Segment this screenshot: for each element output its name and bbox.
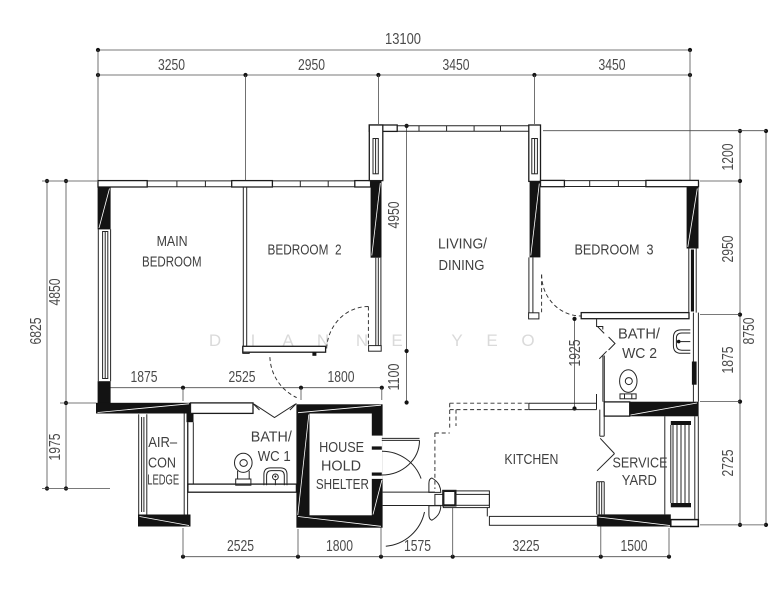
svg-text:WC 1: WC 1 (258, 448, 291, 465)
svg-text:1875: 1875 (720, 346, 737, 373)
svg-text:2950: 2950 (720, 235, 737, 262)
svg-text:MAIN: MAIN (157, 233, 188, 250)
svg-text:E: E (391, 331, 402, 350)
svg-text:E: E (486, 331, 497, 350)
svg-text:3450: 3450 (443, 57, 470, 74)
svg-text:1500: 1500 (621, 538, 648, 555)
svg-text:3450: 3450 (599, 57, 626, 74)
svg-text:O: O (521, 331, 534, 350)
svg-text:SERVICE: SERVICE (613, 455, 668, 472)
svg-text:CON: CON (148, 455, 176, 472)
svg-text:N: N (356, 331, 368, 350)
svg-text:Y: Y (451, 331, 462, 350)
svg-text:1100: 1100 (386, 363, 403, 390)
svg-text:BATH/: BATH/ (618, 326, 661, 343)
svg-text:BEDROOM 2: BEDROOM 2 (268, 242, 342, 259)
svg-text:BEDROOM 3: BEDROOM 3 (575, 242, 654, 259)
svg-text:HOLD: HOLD (321, 458, 361, 475)
svg-text:2525: 2525 (229, 369, 256, 386)
svg-text:KITCHEN: KITCHEN (504, 451, 558, 468)
svg-text:1975: 1975 (47, 433, 64, 460)
svg-text:1800: 1800 (326, 538, 353, 555)
svg-text:1800: 1800 (328, 369, 355, 386)
svg-text:1925: 1925 (567, 339, 584, 366)
svg-text:YARD: YARD (622, 472, 657, 489)
svg-text:BATH/: BATH/ (251, 429, 293, 446)
svg-text:2950: 2950 (298, 57, 325, 74)
svg-text:WC 2: WC 2 (622, 345, 657, 362)
svg-text:BEDROOM: BEDROOM (142, 253, 202, 270)
svg-text:1575: 1575 (404, 538, 431, 555)
svg-text:4850: 4850 (47, 278, 64, 305)
svg-text:LEDGE: LEDGE (147, 472, 179, 489)
svg-text:3225: 3225 (513, 538, 540, 555)
svg-text:6825: 6825 (28, 317, 45, 344)
svg-text:LIVING/: LIVING/ (438, 236, 488, 253)
svg-text:2725: 2725 (720, 449, 737, 476)
svg-text:13100: 13100 (385, 31, 421, 48)
svg-text:1200: 1200 (720, 143, 737, 170)
svg-text:AIR–: AIR– (148, 434, 178, 451)
svg-text:4950: 4950 (386, 201, 403, 228)
svg-text:8750: 8750 (741, 317, 758, 344)
svg-text:1875: 1875 (131, 369, 158, 386)
svg-text:D: D (209, 331, 221, 350)
svg-text:3250: 3250 (158, 57, 185, 74)
svg-text:DINING: DINING (439, 257, 485, 274)
svg-text:HOUSE: HOUSE (319, 439, 364, 456)
svg-text:SHELTER: SHELTER (316, 476, 369, 493)
svg-text:2525: 2525 (227, 538, 254, 555)
